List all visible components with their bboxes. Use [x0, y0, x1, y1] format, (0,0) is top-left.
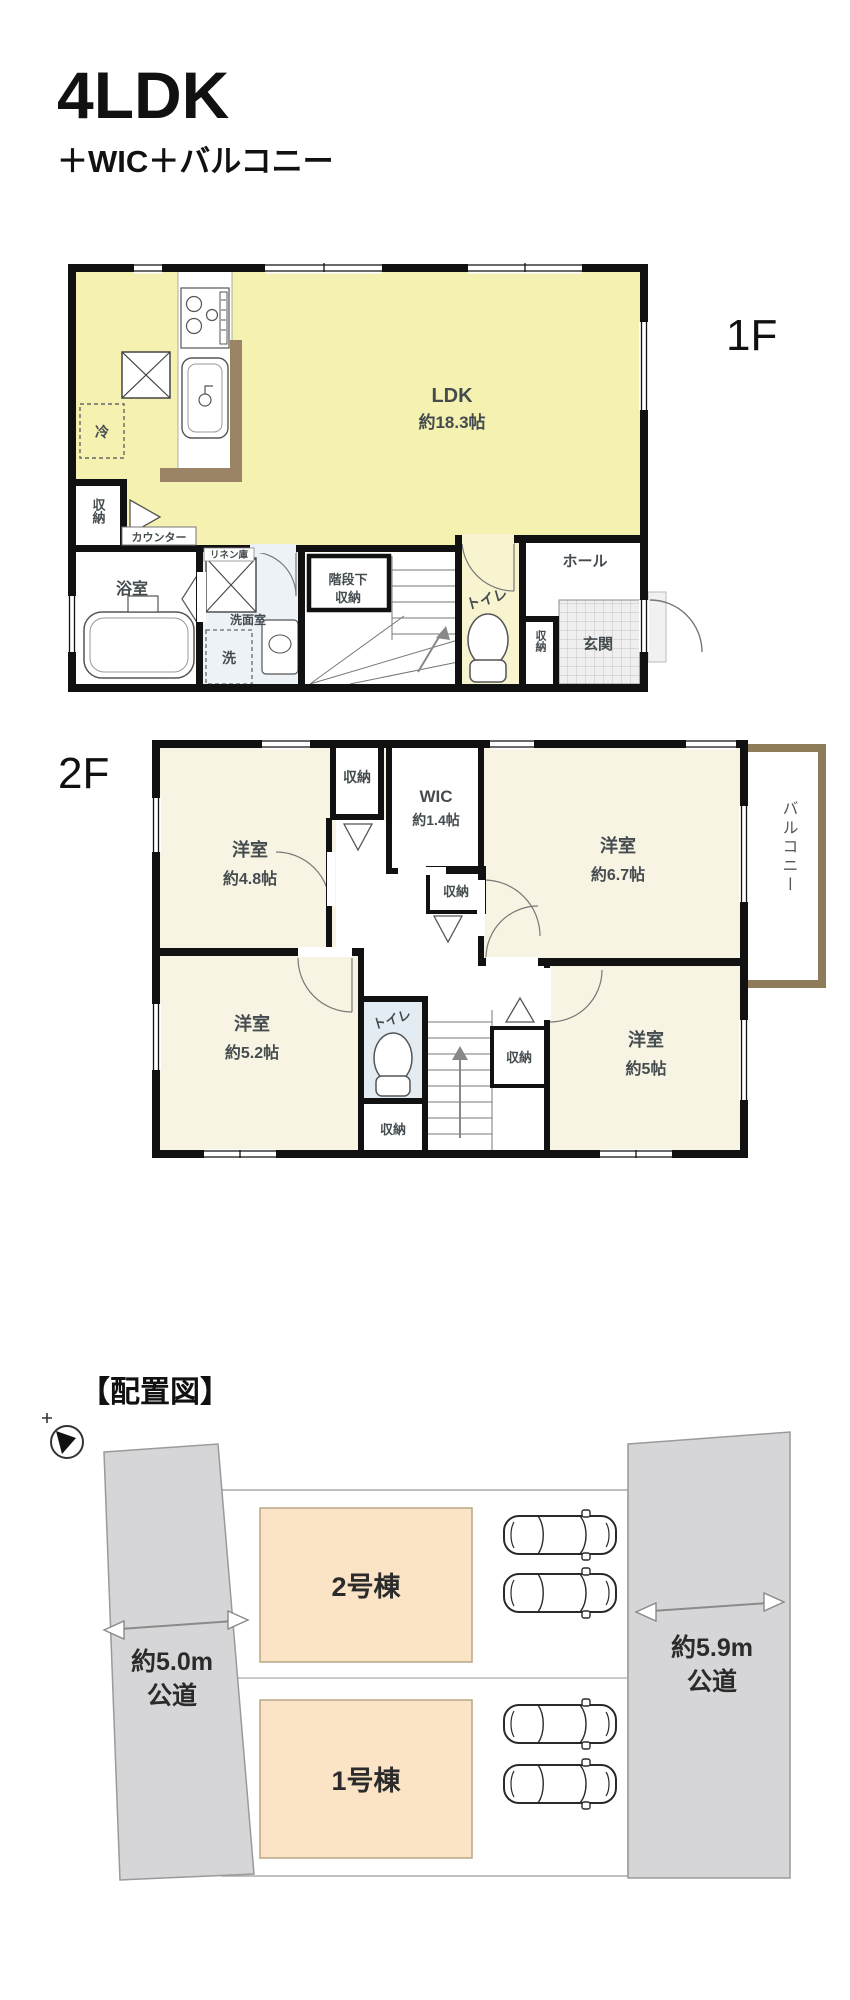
window — [639, 600, 649, 652]
window — [67, 596, 77, 652]
window — [686, 739, 736, 750]
entrance-label: 玄関 — [583, 635, 613, 653]
bed1-size-label: 約4.8帖 — [223, 869, 277, 888]
wall — [358, 948, 364, 1150]
building-1-label: 1号棟 — [331, 1766, 401, 1796]
wic-label: WIC — [419, 787, 452, 806]
fridge-label: 冷 — [95, 424, 109, 440]
wall — [330, 748, 336, 820]
road-left-type-label: 公道 — [147, 1681, 197, 1710]
wall — [386, 748, 392, 874]
under-stair-label-1: 階段下 — [328, 572, 367, 587]
floor2-plan: 洋室 約4.8帖 収納 WIC 約1.4帖 洋室 約6.7帖 収納 洋室 約5.… — [58, 739, 828, 1160]
ldk-size-label: 約18.3帖 — [418, 412, 485, 432]
closet-mid-label: 収納 — [443, 884, 469, 899]
wall — [378, 748, 384, 820]
floor2-label: 2F — [58, 749, 109, 798]
closet-stairs-label: 収納 — [506, 1050, 532, 1065]
wall — [364, 996, 422, 1002]
wall — [455, 535, 462, 684]
entry-storage-label: 収納 — [534, 630, 547, 653]
wall — [68, 684, 648, 692]
floor-plan-page: 4LDK ＋WIC＋バルコニー — [0, 0, 850, 2000]
car-icon — [504, 1759, 616, 1809]
header: 4LDK ＋WIC＋バルコニー — [57, 58, 334, 179]
window — [639, 322, 649, 410]
counter-label: カウンター — [132, 531, 187, 544]
window — [204, 1149, 276, 1159]
stove-icon — [181, 288, 229, 348]
bath-faucet — [128, 596, 158, 612]
floor1-label: 1F — [726, 311, 777, 360]
vanity-icon — [262, 620, 298, 674]
wall — [330, 814, 384, 820]
window — [468, 263, 582, 274]
window — [490, 739, 534, 750]
wall — [553, 616, 559, 684]
bed2-label: 洋室 — [600, 835, 636, 856]
wall — [298, 552, 305, 684]
bed3-size-label: 約5.2帖 — [225, 1043, 279, 1062]
toilet-bowl — [468, 614, 508, 666]
window — [600, 1149, 672, 1159]
page-title: 4LDK — [57, 58, 230, 132]
bed2-size-label: 約6.7帖 — [591, 865, 645, 884]
entrance-step — [648, 592, 666, 662]
storage-1f-label: 収納 — [91, 498, 106, 525]
opening — [327, 852, 335, 906]
opening — [398, 867, 446, 875]
opening — [298, 947, 352, 957]
opening — [543, 968, 551, 1020]
opening — [250, 544, 296, 553]
window — [739, 1020, 749, 1100]
bed3-label: 洋室 — [234, 1013, 270, 1034]
site-plan-heading: 【配置図】 — [80, 1376, 230, 1409]
bath-label: 浴室 — [116, 579, 148, 598]
compass-icon — [42, 1413, 83, 1458]
wall — [422, 996, 428, 1150]
balcony-label: バルコニー — [780, 800, 798, 895]
wall — [364, 1098, 422, 1104]
toilet-tank — [470, 660, 506, 682]
page-subtitle: ＋WIC＋バルコニー — [57, 144, 334, 179]
laundry-label: 洗 — [222, 650, 236, 666]
xbox-kitchen — [122, 352, 170, 398]
toilet-tank — [376, 1076, 410, 1096]
site-plan: 【配置図】 2号棟 1号棟 約5.0m 公道 — [42, 1376, 790, 1880]
bathtub — [84, 612, 194, 678]
road-left-width-label: 約5.0m — [131, 1647, 213, 1676]
kitchen-counter-side — [230, 340, 242, 482]
ldk-label: LDK — [431, 385, 473, 407]
car-icon — [504, 1699, 616, 1749]
bed4-size-label: 約5帖 — [626, 1059, 667, 1078]
car-icon — [504, 1510, 616, 1560]
closet-top-label: 収納 — [343, 769, 371, 785]
window — [151, 1004, 161, 1070]
under-stair-label-2: 収納 — [335, 590, 361, 605]
car-icon — [504, 1568, 616, 1618]
wall — [152, 740, 748, 748]
window — [739, 806, 749, 902]
floor-plan-canvas: 4LDK ＋WIC＋バルコニー — [0, 0, 850, 2000]
wall — [519, 543, 526, 684]
window — [134, 263, 162, 274]
wall — [76, 479, 127, 486]
bed1-label: 洋室 — [232, 839, 268, 860]
floor1-plan: LDK 約18.3帖 冷 収納 カウンター リネン庫 浴室 洗面室 洗 階段下 … — [67, 263, 777, 693]
closet-bottom-label: 収納 — [380, 1122, 406, 1137]
opening — [486, 957, 538, 967]
sink-icon — [182, 358, 228, 438]
building-2-label: 2号棟 — [331, 1572, 401, 1602]
bed4-label: 洋室 — [628, 1029, 664, 1050]
compass-star — [42, 1413, 52, 1423]
opening — [462, 534, 514, 544]
linen-label: リネン庫 — [210, 549, 249, 561]
opening — [477, 880, 485, 936]
hall-label: ホール — [562, 553, 607, 570]
window — [151, 798, 161, 852]
wic-size-label: 約1.4帖 — [412, 812, 459, 828]
opening — [197, 572, 206, 622]
window — [262, 739, 310, 750]
road-right-width-label: 約5.9m — [671, 1633, 753, 1662]
road-right-type-label: 公道 — [687, 1667, 737, 1696]
toilet-2f-fixtures — [374, 1033, 412, 1096]
kitchen-counter-bottom — [160, 468, 242, 482]
window — [265, 263, 382, 274]
washroom-label: 洗面室 — [230, 612, 266, 627]
